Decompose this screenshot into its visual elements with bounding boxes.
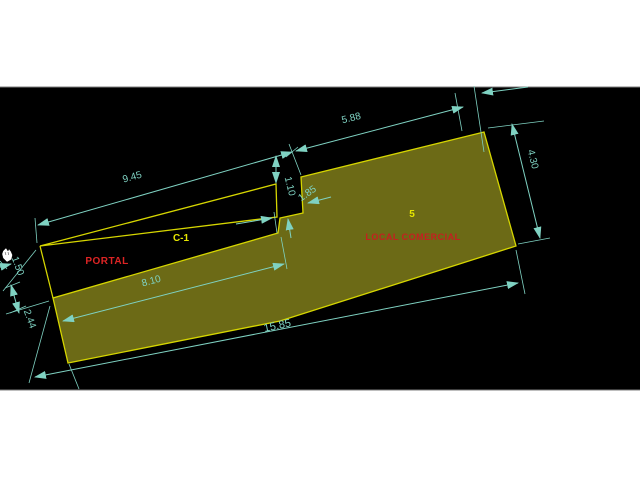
bottom-margin xyxy=(0,390,640,480)
portal-label: PORTAL xyxy=(85,256,128,267)
top-margin xyxy=(0,0,640,87)
cad-drawing-svg: 9.45 5.88 1.10 1.85 4.30 8.10 15.85 1.50… xyxy=(0,0,640,480)
cad-viewer-page: 9.45 5.88 1.10 1.85 4.30 8.10 15.85 1.50… xyxy=(0,0,640,480)
local-comercial-label: LOCAL COMERCIAL xyxy=(365,232,460,242)
room-c1-label: C-1 xyxy=(173,233,190,244)
unit-number-label: 5 xyxy=(409,209,415,220)
